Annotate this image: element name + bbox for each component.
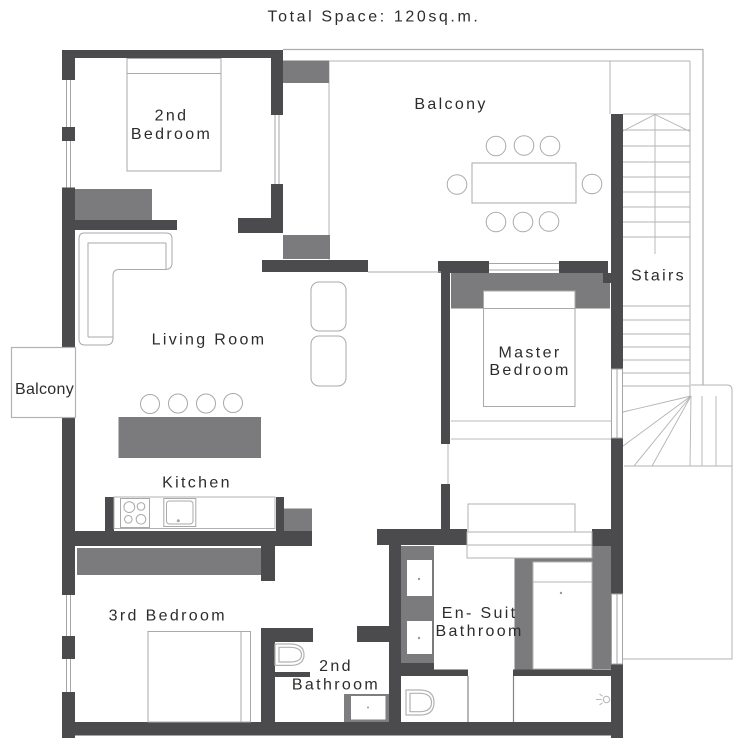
svg-text:Bedroom: Bedroom <box>131 126 212 143</box>
svg-text:Balcony: Balcony <box>15 381 74 398</box>
svg-text:3rd Bedroom: 3rd Bedroom <box>109 607 227 624</box>
svg-text:Total Space: 120sq.m.: Total Space: 120sq.m. <box>268 8 481 25</box>
svg-text:Balcony: Balcony <box>414 96 487 113</box>
svg-text:Master: Master <box>499 345 562 362</box>
svg-text:Bedroom: Bedroom <box>489 362 570 379</box>
svg-text:Kitchen: Kitchen <box>162 474 232 491</box>
svg-text:En- Suit: En- Suit <box>442 605 518 622</box>
svg-text:Bathroom: Bathroom <box>436 623 524 640</box>
svg-text:2nd: 2nd <box>155 108 189 125</box>
svg-text:Living Room: Living Room <box>152 332 267 349</box>
svg-text:Bathroom: Bathroom <box>292 677 380 694</box>
svg-text:Stairs: Stairs <box>631 267 686 284</box>
svg-text:2nd: 2nd <box>319 658 353 675</box>
